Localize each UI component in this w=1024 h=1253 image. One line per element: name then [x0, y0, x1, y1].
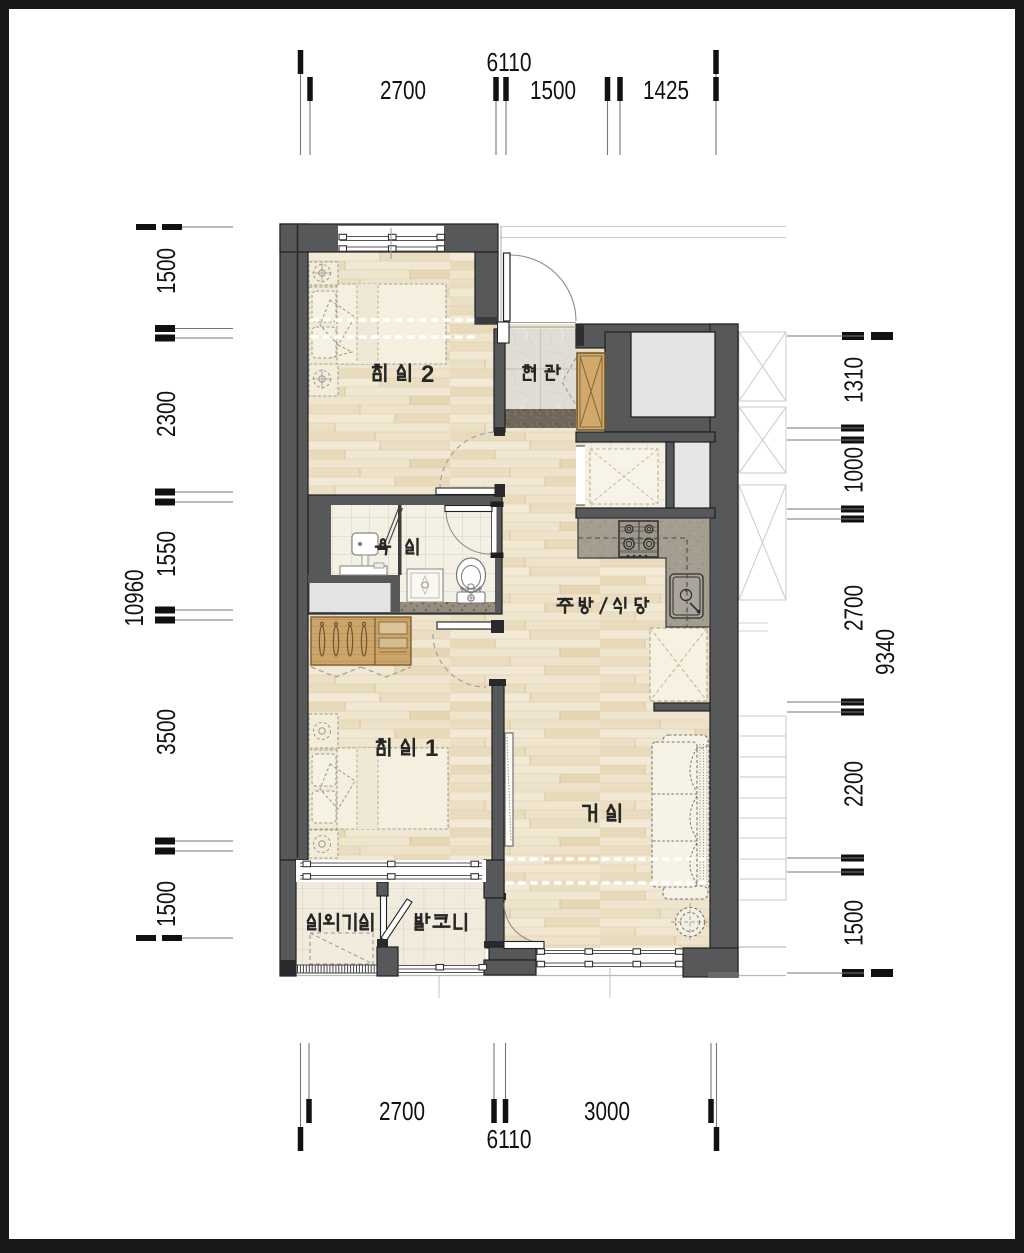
svg-text:2700: 2700 — [841, 585, 869, 631]
svg-text:1550: 1550 — [153, 531, 181, 577]
svg-text:1: 1 — [425, 735, 438, 762]
svg-text:2: 2 — [421, 361, 434, 388]
svg-text:1500: 1500 — [841, 900, 869, 946]
svg-text:3500: 3500 — [153, 709, 181, 755]
svg-text:10960: 10960 — [121, 570, 149, 627]
svg-text:1500: 1500 — [530, 77, 576, 105]
svg-text:1310: 1310 — [841, 357, 869, 403]
svg-text:1000: 1000 — [841, 447, 869, 493]
svg-text:2700: 2700 — [380, 77, 426, 105]
svg-text:3000: 3000 — [584, 1098, 630, 1126]
svg-text:1500: 1500 — [153, 248, 181, 294]
svg-text:6110: 6110 — [487, 49, 532, 77]
svg-text:1500: 1500 — [153, 881, 181, 927]
svg-text:1425: 1425 — [643, 77, 689, 105]
svg-text:9340: 9340 — [872, 629, 900, 675]
svg-text:6110: 6110 — [487, 1126, 532, 1154]
svg-text:2200: 2200 — [841, 761, 869, 807]
svg-text:2700: 2700 — [379, 1098, 425, 1126]
svg-text:2300: 2300 — [153, 391, 181, 437]
